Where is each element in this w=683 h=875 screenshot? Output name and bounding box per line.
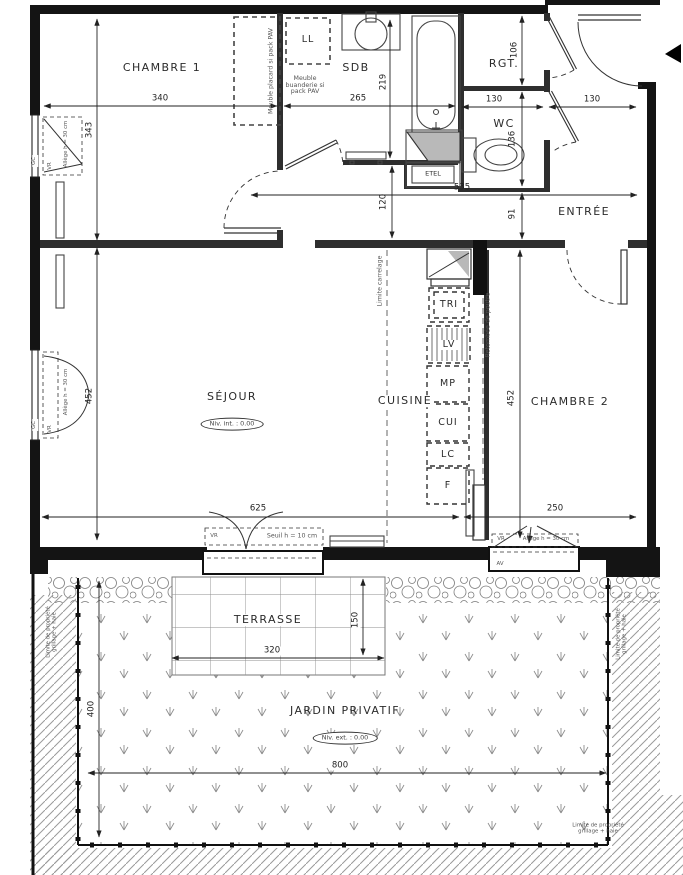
room-label-sdb: SDB <box>342 62 369 74</box>
dim-130-rgt: 130 <box>486 96 502 105</box>
label-lc: LC <box>441 450 455 460</box>
level-exterior-badge: Niv. ext. : 0.00 <box>313 732 378 745</box>
note-limite-propriete-right: Limite de propriété grillage + haie <box>616 608 627 660</box>
radiator-chambre1 <box>56 182 64 238</box>
label-mp: MP <box>440 379 456 389</box>
note-gc-sejour: GC <box>32 419 38 431</box>
dim-343: 343 <box>86 122 95 138</box>
door-chambre2 <box>567 250 627 304</box>
dim-250: 250 <box>547 505 563 514</box>
dim-625: 625 <box>250 505 266 514</box>
note-vr-chambre1: VR <box>48 162 54 169</box>
note-gc-chambre1: GC <box>32 155 38 167</box>
room-label-cuisine: CUISINE <box>376 395 434 407</box>
note-meuble-buanderie: Meuble buanderie si pack PAV <box>286 76 325 96</box>
dim-400: 400 <box>88 699 97 719</box>
note-seuil: Seuil h = 10 cm <box>267 534 317 541</box>
note-av: AV <box>496 562 503 568</box>
note-vr-french-door: VR <box>210 534 217 540</box>
washbasin-icon <box>342 12 400 50</box>
note-meuble-placard: Meuble placard si pack PAV <box>269 28 276 114</box>
door-rgt <box>547 17 577 78</box>
note-vr-sejour: VR <box>48 425 54 432</box>
note-allege-chambre2: Allège h = 30 cm <box>523 537 570 543</box>
room-label-sejour: SÉJOUR <box>207 391 257 403</box>
hatch-bottom <box>30 848 683 875</box>
room-label-chambre1: CHAMBRE 1 <box>123 62 201 74</box>
room-label-jardin: JARDIN PRIVATIF <box>290 705 400 717</box>
room-label-chambre2: CHAMBRE 2 <box>531 396 609 408</box>
structural-column <box>473 240 487 295</box>
french-door-sejour <box>203 512 323 574</box>
note-limite-carrelage: Limite carrelage <box>378 255 385 306</box>
dim-130-entree: 130 <box>584 96 600 105</box>
room-label-wc: WC <box>493 118 514 130</box>
dim-265: 265 <box>350 95 366 104</box>
dim-91: 91 <box>509 209 518 220</box>
wc-handbasin-icon <box>406 130 462 162</box>
hatch-corner <box>660 795 683 848</box>
entrance-arrow-icon <box>665 44 681 63</box>
dim-150: 150 <box>352 610 361 630</box>
dim-535: 535 <box>454 184 470 193</box>
dim-320: 320 <box>262 647 282 656</box>
door-entrance <box>578 15 642 86</box>
interior-walls <box>40 13 647 540</box>
sejour-sideboard <box>330 536 384 547</box>
room-label-entree: ENTRÉE <box>558 206 610 218</box>
dim-219: 219 <box>380 74 389 90</box>
note-limite-propriete-left: Limite de propriété grillage + haie <box>46 606 57 658</box>
label-f: F <box>445 481 451 491</box>
dim-136: 136 <box>509 131 518 147</box>
exterior-walls <box>30 0 660 577</box>
door-chambre1 <box>224 171 281 233</box>
label-cui: CUI <box>438 418 457 428</box>
label-tri: TRI <box>440 300 458 310</box>
level-interior-badge: Niv. int. : 0.00 <box>201 418 264 431</box>
window-chambre1 <box>30 115 40 177</box>
label-ll: LL <box>302 35 315 45</box>
floor-plan: CHAMBRE 1 SDB RGT. WC ENTRÉE SÉJOUR CUIS… <box>0 0 683 875</box>
dim-452-sejour: 452 <box>86 388 95 404</box>
note-allege-sejour: Allège h = 30 cm <box>64 369 70 416</box>
note-allege-chambre1: Allège h = 30 cm <box>64 121 70 168</box>
column-outline <box>473 485 485 540</box>
south-openings <box>43 117 579 574</box>
dim-106: 106 <box>511 42 520 58</box>
kitchen-sink-icon <box>427 249 471 286</box>
note-vr-chambre2: VR <box>497 537 504 543</box>
label-lv: LV <box>441 340 458 350</box>
bathtub-icon <box>412 16 460 136</box>
note-retombee-poutre: Retombée de poutre <box>486 293 493 358</box>
note-limite-propriete-bottom: Limite de propriété grillage + haie <box>572 823 624 834</box>
door-sdb <box>285 140 343 169</box>
dim-120: 120 <box>380 194 389 210</box>
label-etel: ETEL <box>425 171 441 178</box>
kitchen-units <box>427 249 471 504</box>
radiator-sejour <box>56 255 64 308</box>
dim-340: 340 <box>152 95 168 104</box>
dim-800: 800 <box>330 762 350 771</box>
room-label-rgt: RGT. <box>489 58 519 70</box>
room-label-terrasse: TERRASSE <box>232 614 304 626</box>
door-wc <box>549 91 579 152</box>
dim-452-chambre2: 452 <box>508 390 517 406</box>
